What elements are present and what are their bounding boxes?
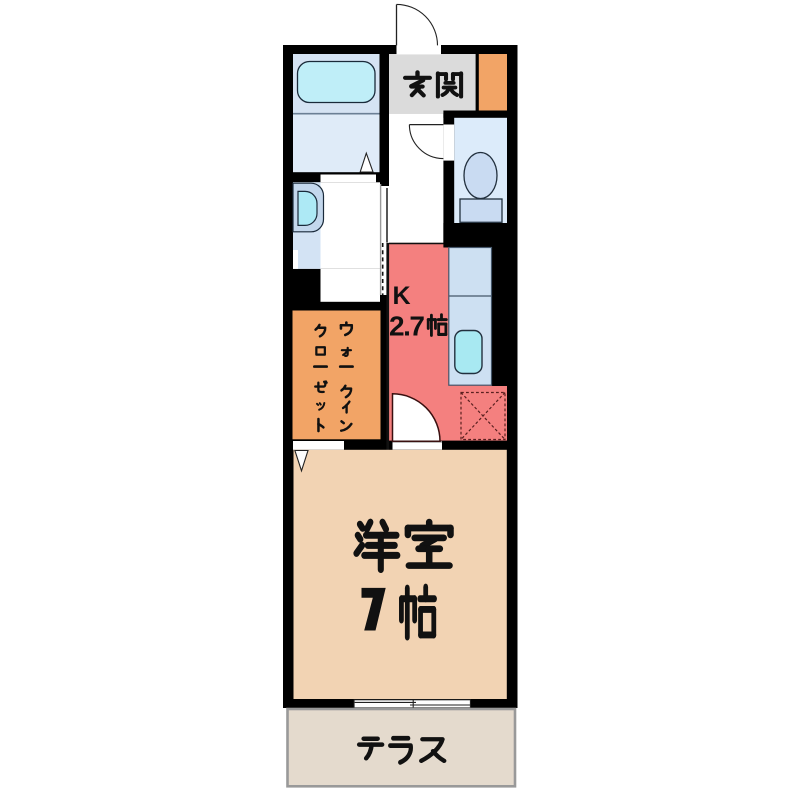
svg-text:2.7: 2.7 [389,311,424,342]
svg-text:K: K [393,282,411,310]
